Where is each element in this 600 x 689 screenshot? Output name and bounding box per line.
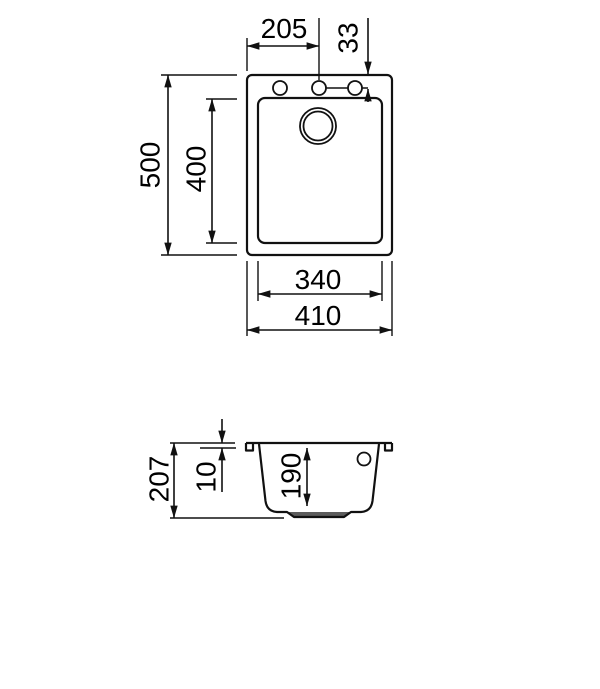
dim-label-bowl-inner-depth: 190	[276, 453, 307, 500]
drain-outer-circle	[300, 108, 336, 144]
dim-label-outer-depth: 500	[135, 142, 166, 189]
side-view: 207 10 190	[144, 419, 393, 518]
overflow-hole	[358, 453, 371, 466]
left-rim-lip	[246, 443, 253, 451]
sink-technical-drawing-page: 205 33 500 400 340	[0, 0, 600, 689]
tap-hole-center	[312, 81, 326, 95]
tap-hole-left	[273, 81, 287, 95]
tap-hole-right	[348, 81, 362, 95]
dim-bowl-width: 340	[258, 261, 382, 301]
sink-technical-drawing: 205 33 500 400 340	[0, 0, 600, 689]
dim-label-tap-hole-offset-x: 205	[261, 13, 308, 44]
dim-label-rim-thickness: 10	[191, 461, 222, 492]
dim-label-outer-width: 410	[295, 300, 342, 331]
dim-label-total-height: 207	[144, 456, 175, 503]
right-rim-lip	[385, 443, 392, 451]
drain-inner-circle	[304, 112, 333, 141]
bowl-outline	[258, 98, 382, 243]
dim-label-bowl-width: 340	[295, 264, 342, 295]
top-view: 205 33 500 400 340	[135, 13, 393, 336]
dim-tap-hole-offset-x: 205	[247, 13, 319, 80]
dim-rim-thickness: 10	[191, 419, 237, 493]
dim-label-tap-hole-offset-y: 33	[333, 22, 364, 53]
sink-outer-outline	[247, 75, 392, 255]
dim-label-bowl-depth: 400	[181, 146, 212, 193]
dim-bowl-inner-depth: 190	[276, 448, 308, 506]
dim-bowl-depth: 400	[181, 99, 238, 243]
